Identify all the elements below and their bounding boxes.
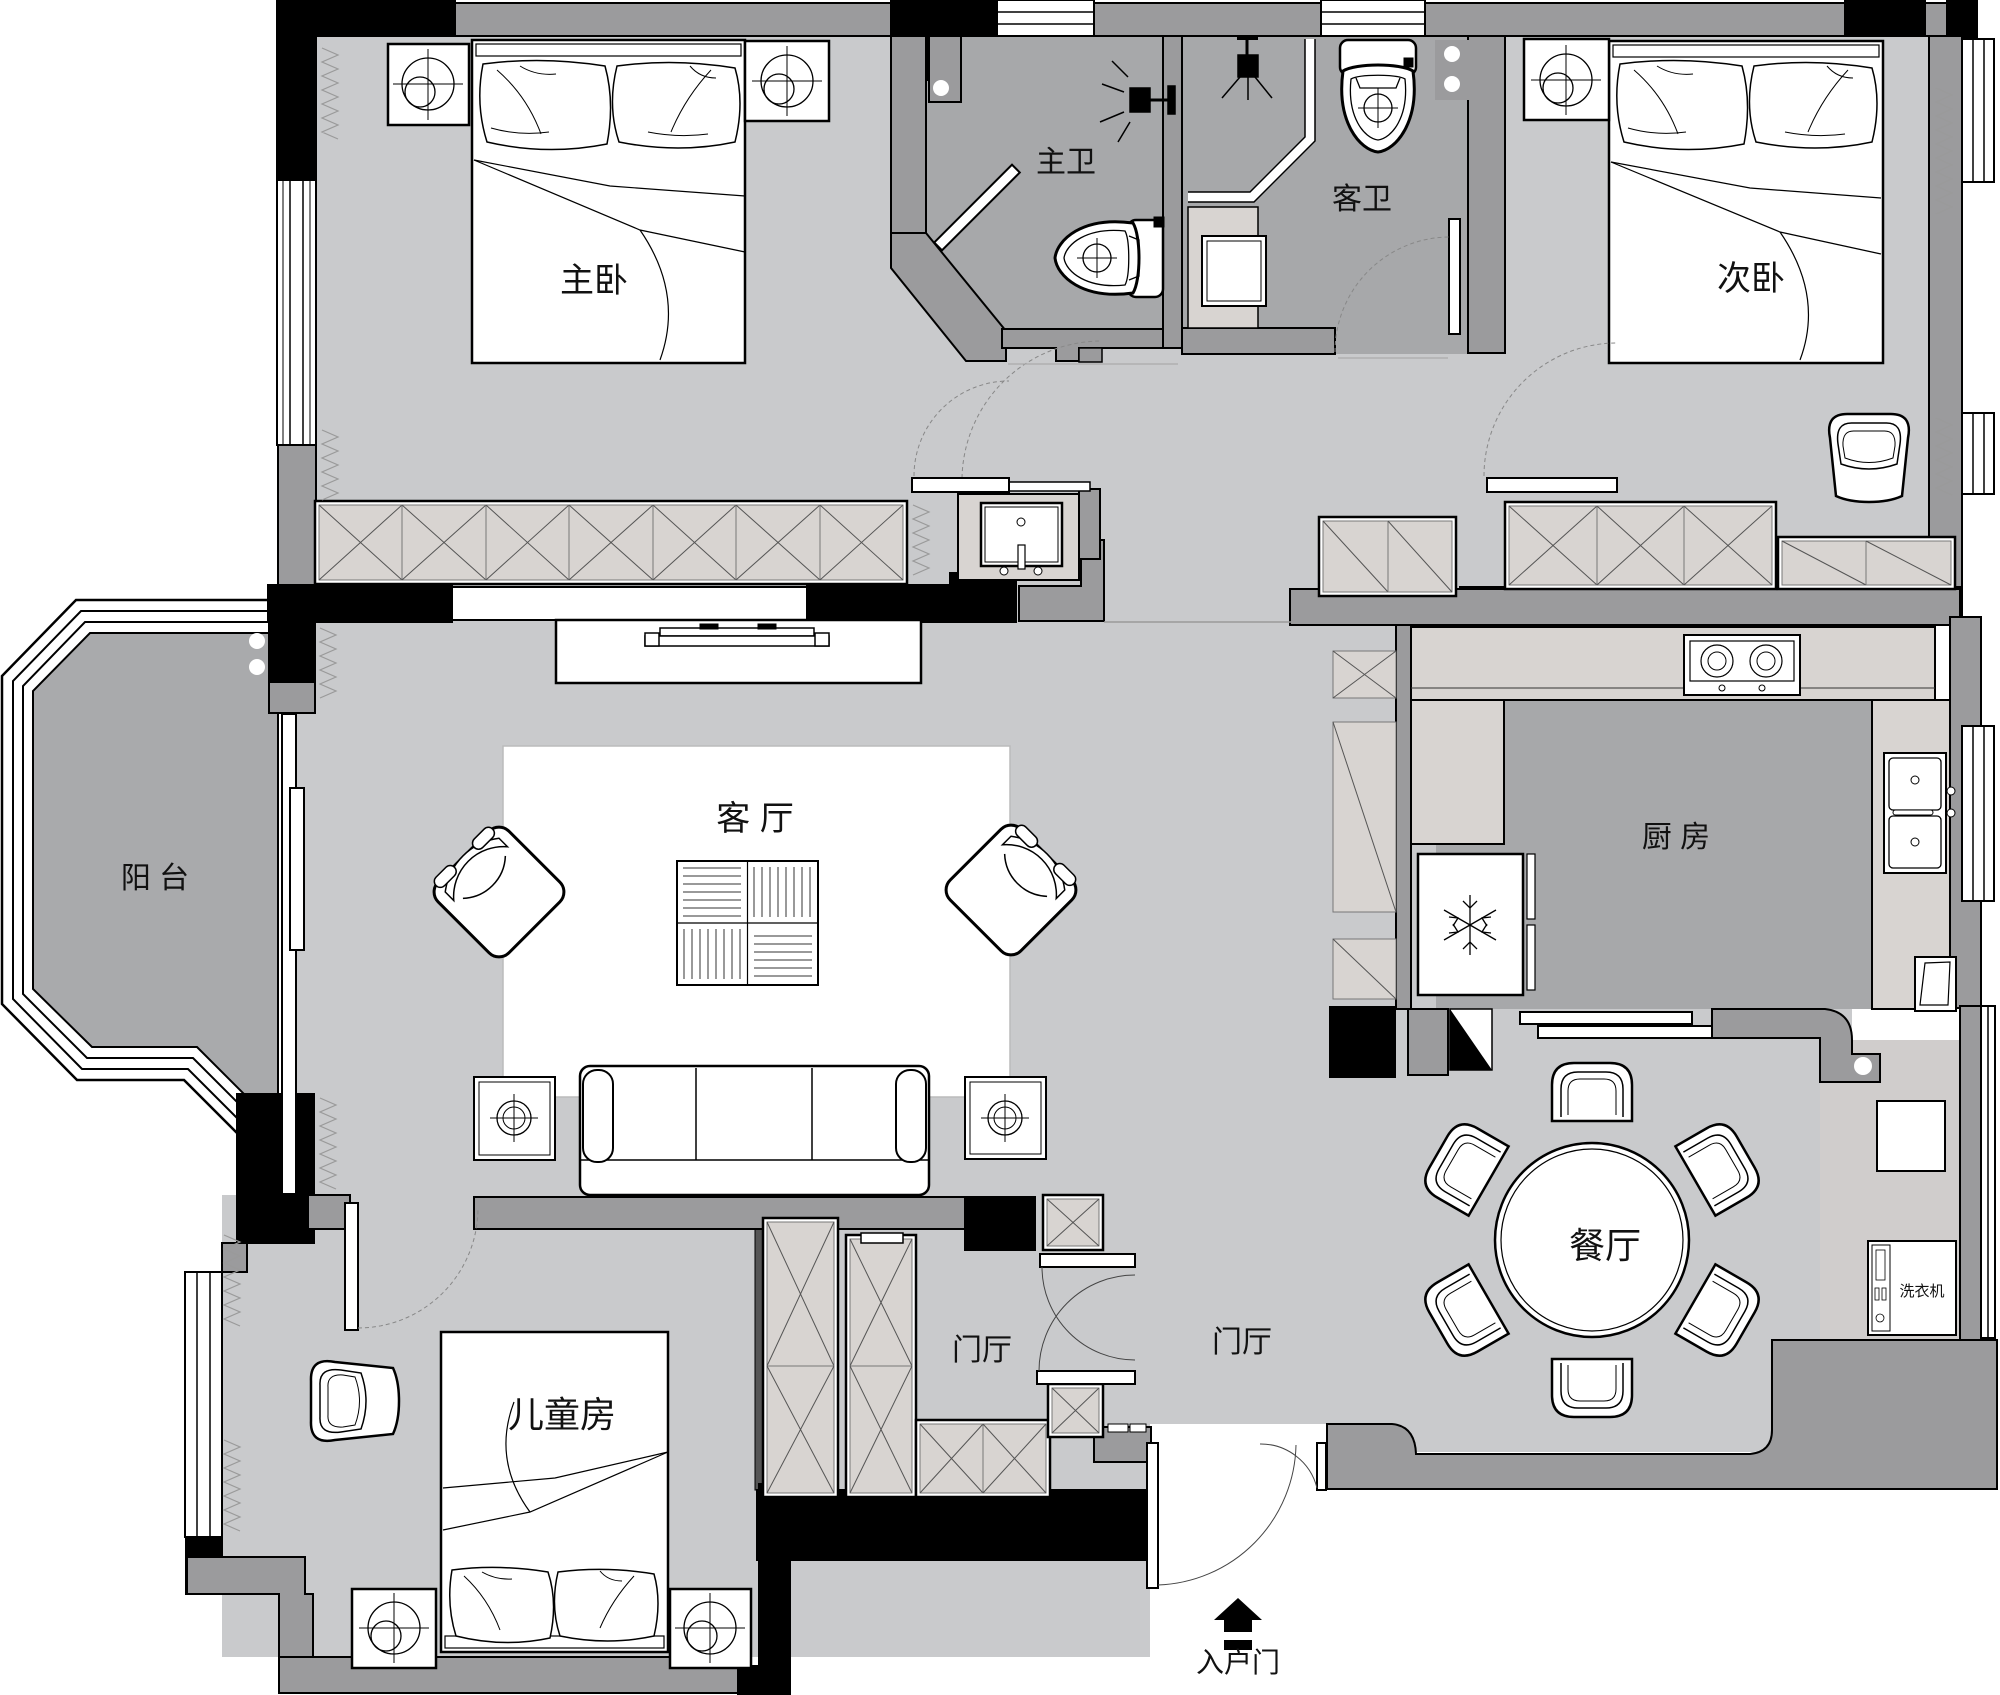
svg-text:儿童房: 儿童房 [508, 1394, 616, 1435]
svg-text:门厅: 门厅 [952, 1334, 1012, 1367]
svg-text:餐厅: 餐厅 [1569, 1225, 1641, 1266]
svg-text:门厅: 门厅 [1212, 1326, 1272, 1359]
svg-text:主卫: 主卫 [1036, 146, 1096, 179]
svg-text:客卫: 客卫 [1332, 183, 1392, 216]
svg-text:厨 房: 厨 房 [1642, 821, 1710, 854]
svg-text:客 厅: 客 厅 [716, 800, 793, 838]
svg-text:入户门: 入户门 [1196, 1647, 1280, 1678]
svg-text:阳 台: 阳 台 [121, 862, 189, 895]
svg-text:次卧: 次卧 [1717, 260, 1785, 298]
svg-text:主卧: 主卧 [560, 262, 628, 300]
svg-text:洗衣机: 洗衣机 [1899, 1283, 1944, 1300]
